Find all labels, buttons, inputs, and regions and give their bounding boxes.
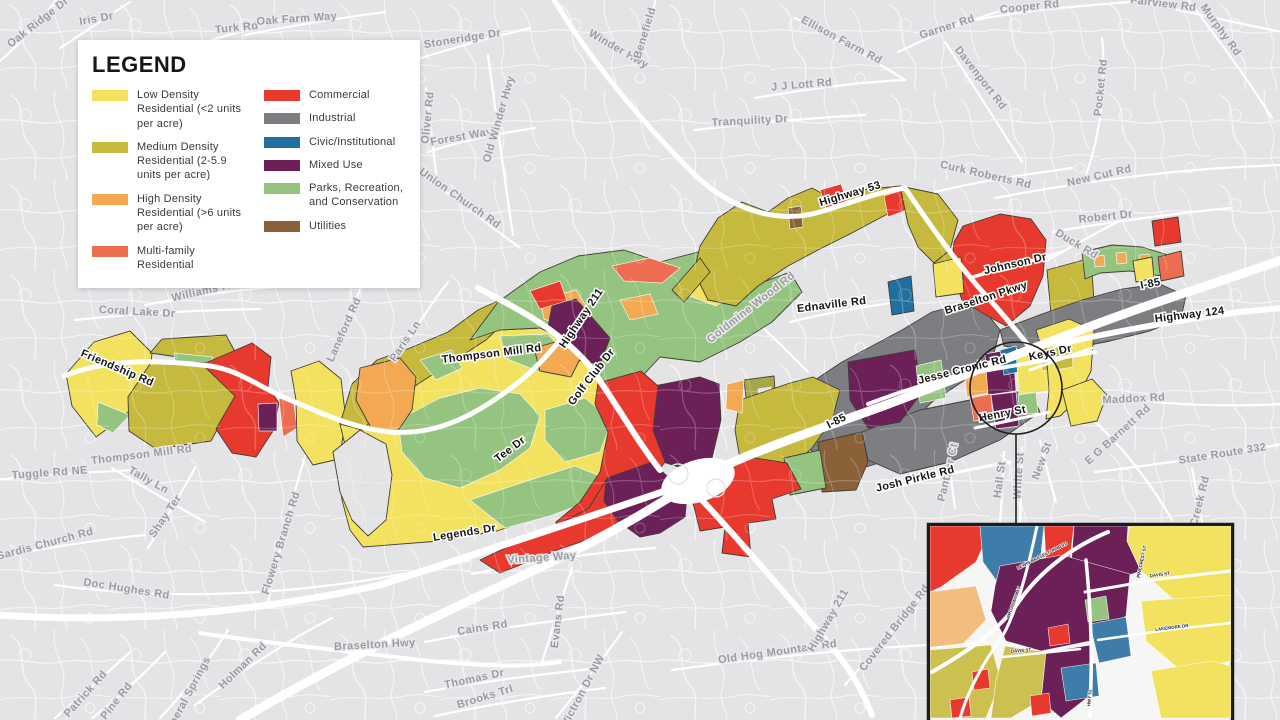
- downtown-inset-map: LEWIS BRASELTON BLVDBROADWAY AVDAVIS STD…: [929, 525, 1233, 720]
- legend-panel: LEGEND Low Density Residential (<2 units…: [78, 40, 420, 288]
- legend-swatch: [264, 221, 300, 232]
- legend-column-other: CommercialIndustrialCivic/InstitutionalM…: [264, 88, 406, 272]
- land-use-map-page: Oak Ridge DrIris DrTurk RdOak Farm WaySt…: [0, 0, 1280, 720]
- legend-swatch: [92, 142, 128, 153]
- legend-label: Utilities: [309, 219, 346, 233]
- legend-column-residential: Low Density Residential (<2 units per ac…: [92, 88, 250, 272]
- legend-title: LEGEND: [92, 52, 406, 78]
- legend-swatch: [92, 246, 128, 257]
- legend-item: High Density Residential (>6 units per a…: [92, 192, 250, 235]
- legend-item: Commercial: [264, 88, 406, 102]
- legend-item: Mixed Use: [264, 158, 406, 172]
- legend-columns: Low Density Residential (<2 units per ac…: [92, 88, 406, 272]
- legend-item: Low Density Residential (<2 units per ac…: [92, 88, 250, 131]
- legend-swatch: [92, 90, 128, 101]
- legend-swatch: [264, 160, 300, 171]
- legend-item: Medium Density Residential (2-5.9 units …: [92, 140, 250, 183]
- legend-label: Parks, Recreation, and Conservation: [309, 181, 406, 210]
- legend-item: Industrial: [264, 111, 406, 125]
- legend-item: Civic/Institutional: [264, 135, 406, 149]
- legend-swatch: [264, 183, 300, 194]
- legend-swatch: [92, 194, 128, 205]
- legend-label: Civic/Institutional: [309, 135, 395, 149]
- legend-label: Industrial: [309, 111, 356, 125]
- legend-label: Low Density Residential (<2 units per ac…: [137, 88, 250, 131]
- legend-item: Utilities: [264, 219, 406, 233]
- legend-item: Multi-family Residential: [92, 244, 250, 273]
- legend-swatch: [264, 90, 300, 101]
- legend-label: Multi-family Residential: [137, 244, 250, 273]
- legend-swatch: [264, 113, 300, 124]
- legend-swatch: [264, 137, 300, 148]
- legend-label: High Density Residential (>6 units per a…: [137, 192, 250, 235]
- legend-label: Medium Density Residential (2-5.9 units …: [137, 140, 250, 183]
- legend-item: Parks, Recreation, and Conservation: [264, 181, 406, 210]
- legend-label: Commercial: [309, 88, 370, 102]
- legend-label: Mixed Use: [309, 158, 363, 172]
